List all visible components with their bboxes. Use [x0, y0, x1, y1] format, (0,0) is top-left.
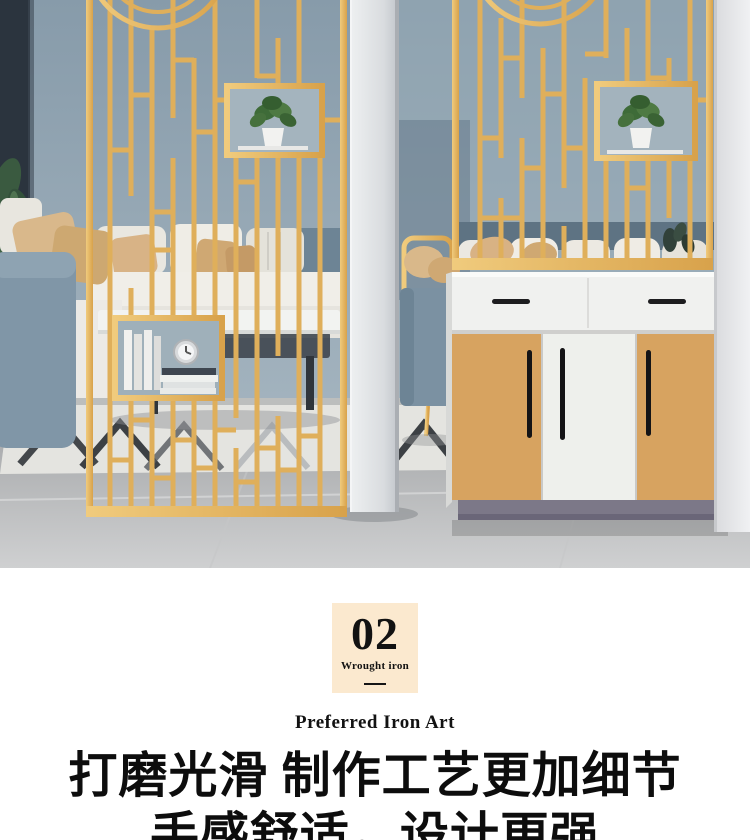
- dash-divider: [364, 683, 386, 685]
- section-number-badge: 02 Wrought iron: [332, 603, 418, 693]
- headline-line-1: 打磨光滑 制作工艺更加细节: [0, 746, 750, 806]
- screen-shelf-books: [115, 318, 222, 398]
- section-divider: 02 Wrought iron Preferred Iron Art 打磨光滑 …: [0, 603, 750, 840]
- screen-shelf-plant: [597, 84, 695, 158]
- screen-shelf-plant: [227, 86, 322, 155]
- room-photo-canvas: [0, 0, 750, 568]
- shoe-cabinet: [446, 272, 728, 536]
- section-subtitle: Preferred Iron Art: [0, 712, 750, 734]
- headline-line-2: 手感舒适，设计更强: [0, 806, 750, 840]
- drawer-handle-left: [492, 299, 530, 304]
- product-detail-page: 02 Wrought iron Preferred Iron Art 打磨光滑 …: [0, 0, 750, 840]
- door-handle-left: [527, 350, 532, 438]
- door-handle-middle: [560, 348, 565, 440]
- cabinet-door-middle: [542, 334, 636, 500]
- door-handle-right: [646, 350, 651, 436]
- section-number-label: Wrought iron: [341, 660, 409, 672]
- drawer-handle-right: [648, 299, 686, 304]
- section-number: 02: [351, 611, 399, 657]
- room-photo: [0, 0, 750, 568]
- right-white-wall: [714, 0, 750, 532]
- section-headline: 打磨光滑 制作工艺更加细节 手感舒适，设计更强: [0, 746, 750, 840]
